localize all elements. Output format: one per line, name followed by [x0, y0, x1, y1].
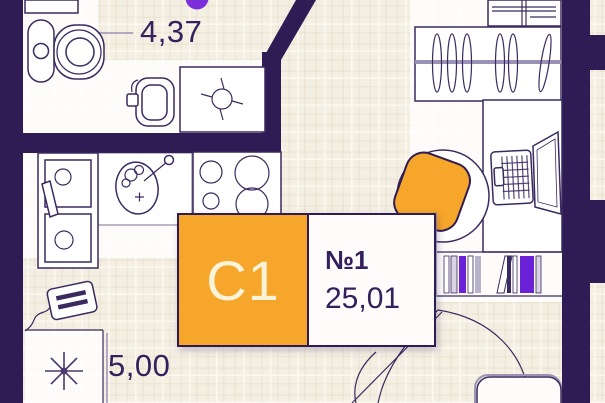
unit-area: 25,01	[325, 282, 434, 316]
electrical-panel-icon	[25, 281, 98, 331]
wall-right-tooth-bottom	[590, 200, 605, 283]
vent-shaft	[25, 0, 78, 13]
hallway-area-label: 4,37	[140, 14, 202, 50]
pillow-icon	[475, 375, 561, 403]
left-room-area-label: 5,00	[108, 348, 170, 384]
shelf-unit-icon	[488, 0, 561, 26]
wall-right	[562, 0, 590, 403]
stove-icon	[193, 152, 281, 220]
double-sink-unit-icon	[38, 153, 98, 268]
unit-type-badge: С1	[179, 215, 309, 345]
unit-info: №1 25,01	[309, 215, 434, 345]
unit-type-code: С1	[206, 248, 280, 313]
unit-number: №1	[325, 245, 434, 276]
floorplan: 4,37 5,00 С1 №1 25,01	[0, 0, 605, 403]
washbasin-icon	[127, 78, 174, 126]
wall-left	[0, 0, 23, 403]
toilet-icon	[28, 20, 104, 82]
left-room-border	[25, 330, 107, 403]
wall-entry-diagonal	[262, 0, 316, 60]
shower-icon	[180, 67, 265, 132]
lamp-symbol-icon	[45, 352, 83, 390]
wall-bathroom-bottom	[23, 133, 281, 153]
wardrobe-hangers-icon	[415, 27, 561, 101]
unit-card[interactable]: С1 №1 25,01	[177, 213, 436, 347]
purple-marker-icon	[186, 0, 209, 10]
wall-right-tooth-top	[590, 35, 605, 70]
